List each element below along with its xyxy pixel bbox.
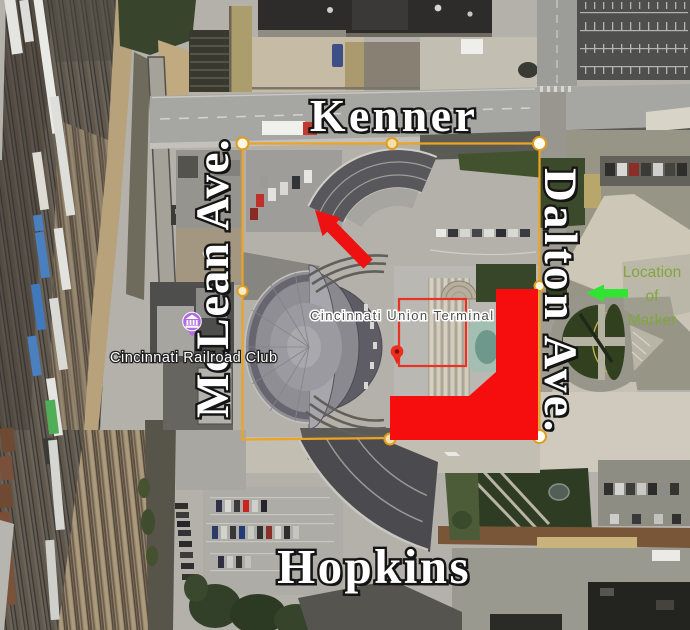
svg-text:Marker: Marker	[628, 312, 676, 329]
svg-text:Kenner: Kenner	[310, 90, 479, 141]
svg-text:Hopkins: Hopkins	[277, 539, 471, 594]
svg-text:of: of	[646, 288, 660, 305]
svg-text:McLean Ave.: McLean Ave.	[187, 138, 239, 418]
svg-text:Location: Location	[623, 264, 682, 281]
svg-text:Dalton Ave.: Dalton Ave.	[534, 168, 586, 435]
svg-text:Cincinnati Railroad Club: Cincinnati Railroad Club	[110, 350, 278, 366]
svg-text:Cincinnati Union Terminal: Cincinnati Union Terminal	[310, 308, 495, 323]
